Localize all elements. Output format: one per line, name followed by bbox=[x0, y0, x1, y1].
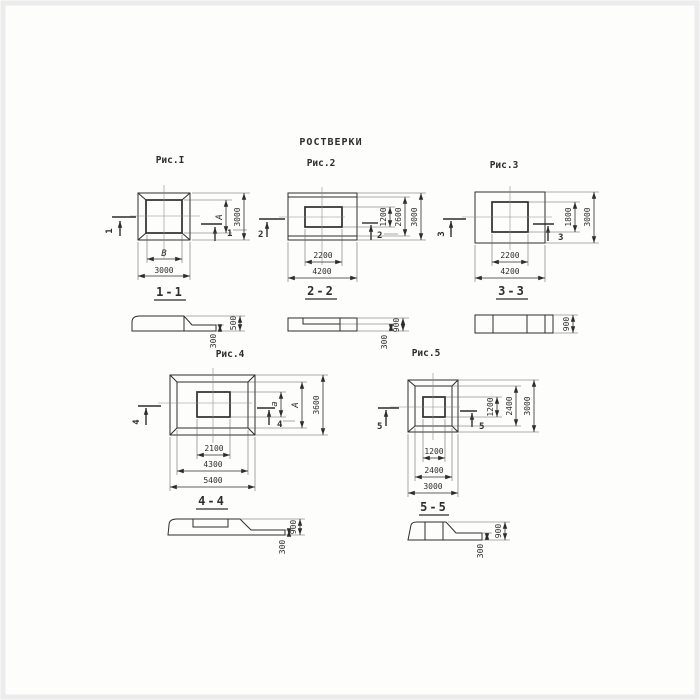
fig4-dim-width-outer: 5400 bbox=[203, 476, 222, 485]
fig1-section-dim-step: 300 bbox=[209, 334, 218, 349]
fig1-cut-mark-left-label: 1 bbox=[105, 228, 115, 233]
fig5-plan-drawing bbox=[378, 373, 539, 497]
fig2-plan-drawing bbox=[259, 187, 426, 282]
fig4-section-title: 4-4 bbox=[198, 494, 226, 508]
fig5-dim-width-inner: 1200 bbox=[424, 447, 443, 456]
fig2-dim-width-inner: 2200 bbox=[313, 251, 332, 260]
fig1-dim-height-inner: А bbox=[215, 214, 225, 220]
fig1-section-title: 1-1 bbox=[156, 285, 184, 299]
fig3-dim-height-outer: 3000 bbox=[583, 207, 592, 226]
fig5-dim-height-inner: 1200 bbox=[486, 397, 495, 416]
fig3-dim-width-inner: 2200 bbox=[500, 251, 519, 260]
fig1-section-dim-total: 500 bbox=[229, 316, 238, 331]
scan-edge bbox=[3, 3, 697, 697]
fig1-dim-width-outer: 3000 bbox=[154, 266, 173, 275]
fig5-section-dim-total: 900 bbox=[494, 524, 503, 539]
fig5-dim-width-outer: 3000 bbox=[423, 482, 442, 491]
fig2-cut-mark-right-label: 2 bbox=[377, 231, 382, 241]
fig2-dim-height-inner: 1200 bbox=[379, 207, 388, 226]
fig3-plan-drawing bbox=[443, 186, 599, 282]
drawing-sheet: РОСТВЕРКИ Рис.I 1 1 А 3000 В bbox=[0, 0, 700, 700]
fig1-caption: Рис.I bbox=[156, 155, 185, 166]
fig4-caption: Рис.4 bbox=[216, 349, 245, 360]
fig4-plan-drawing bbox=[138, 368, 328, 491]
fig4-section-dim-step: 300 bbox=[278, 540, 287, 555]
fig5-dim-width-mid: 2400 bbox=[424, 466, 443, 475]
fig1-dim-height-outer: 3000 bbox=[233, 207, 242, 226]
fig2-dim-width-outer: 4200 bbox=[312, 267, 331, 276]
figure-1: Рис.I 1 1 А 3000 В 3000 1-1 bbox=[105, 155, 250, 348]
sheet-title: РОСТВЕРКИ bbox=[299, 137, 362, 148]
fig2-section-title: 2-2 bbox=[307, 284, 335, 298]
fig2-cut-mark-left-label: 2 bbox=[258, 230, 263, 240]
figure-2: Рис.2 2 2 1200 2600 3000 2 bbox=[258, 158, 426, 349]
fig2-section-drawing bbox=[288, 318, 409, 331]
fig5-cut-mark-left-label: 5 bbox=[377, 422, 382, 432]
fig5-section-title: 5-5 bbox=[420, 500, 448, 514]
fig5-section-dim-step: 300 bbox=[476, 544, 485, 559]
fig1-cut-mark-right-label: 1 bbox=[227, 229, 232, 239]
fig4-dim-height-mid: А bbox=[291, 402, 301, 408]
fig3-cut-mark-left-label: 3 bbox=[437, 231, 447, 236]
fig3-section-title: 3-3 bbox=[498, 284, 526, 298]
fig3-dim-height-inner: 1800 bbox=[564, 207, 573, 226]
fig5-dim-height-outer: 3000 bbox=[523, 396, 532, 415]
fig4-dim-height-inner: а bbox=[270, 401, 280, 406]
fig5-dim-height-mid: 2400 bbox=[505, 396, 514, 415]
fig5-cut-mark-right-label: 5 bbox=[479, 422, 484, 432]
fig3-caption: Рис.3 bbox=[490, 160, 519, 171]
fig4-section-dim-total: 900 bbox=[289, 520, 298, 535]
fig4-dim-width-inner: 2100 bbox=[204, 444, 223, 453]
figure-3: Рис.3 3 3 1800 3000 2200 4200 3-3 bbox=[437, 160, 599, 333]
fig3-cut-mark-right-label: 3 bbox=[558, 233, 563, 243]
figure-5: Рис.5 5 5 1200 2400 bbox=[377, 348, 539, 558]
fig1-dim-width-inner: В bbox=[161, 249, 167, 259]
fig2-caption: Рис.2 bbox=[307, 158, 336, 169]
fig2-section-dim-step: 300 bbox=[380, 335, 389, 350]
fig4-cut-mark-right-label: 4 bbox=[277, 420, 283, 430]
fig3-dim-width-outer: 4200 bbox=[500, 267, 519, 276]
pile-cap-drawing: РОСТВЕРКИ Рис.I 1 1 А 3000 В bbox=[0, 0, 700, 700]
fig5-caption: Рис.5 bbox=[412, 348, 441, 359]
fig3-section-dim-total: 900 bbox=[562, 317, 571, 332]
fig4-dim-height-outer: 3600 bbox=[312, 395, 321, 414]
fig2-section-dim-total: 900 bbox=[392, 318, 401, 333]
fig2-dim-height-outer: 3000 bbox=[410, 207, 419, 226]
fig2-dim-height-mid: 2600 bbox=[394, 207, 403, 226]
fig4-cut-mark-left-label: 4 bbox=[132, 419, 142, 425]
figure-4: Рис.4 4 4 а А bbox=[132, 349, 328, 554]
fig4-dim-width-mid: 4300 bbox=[203, 460, 222, 469]
fig4-section-drawing bbox=[168, 519, 305, 535]
